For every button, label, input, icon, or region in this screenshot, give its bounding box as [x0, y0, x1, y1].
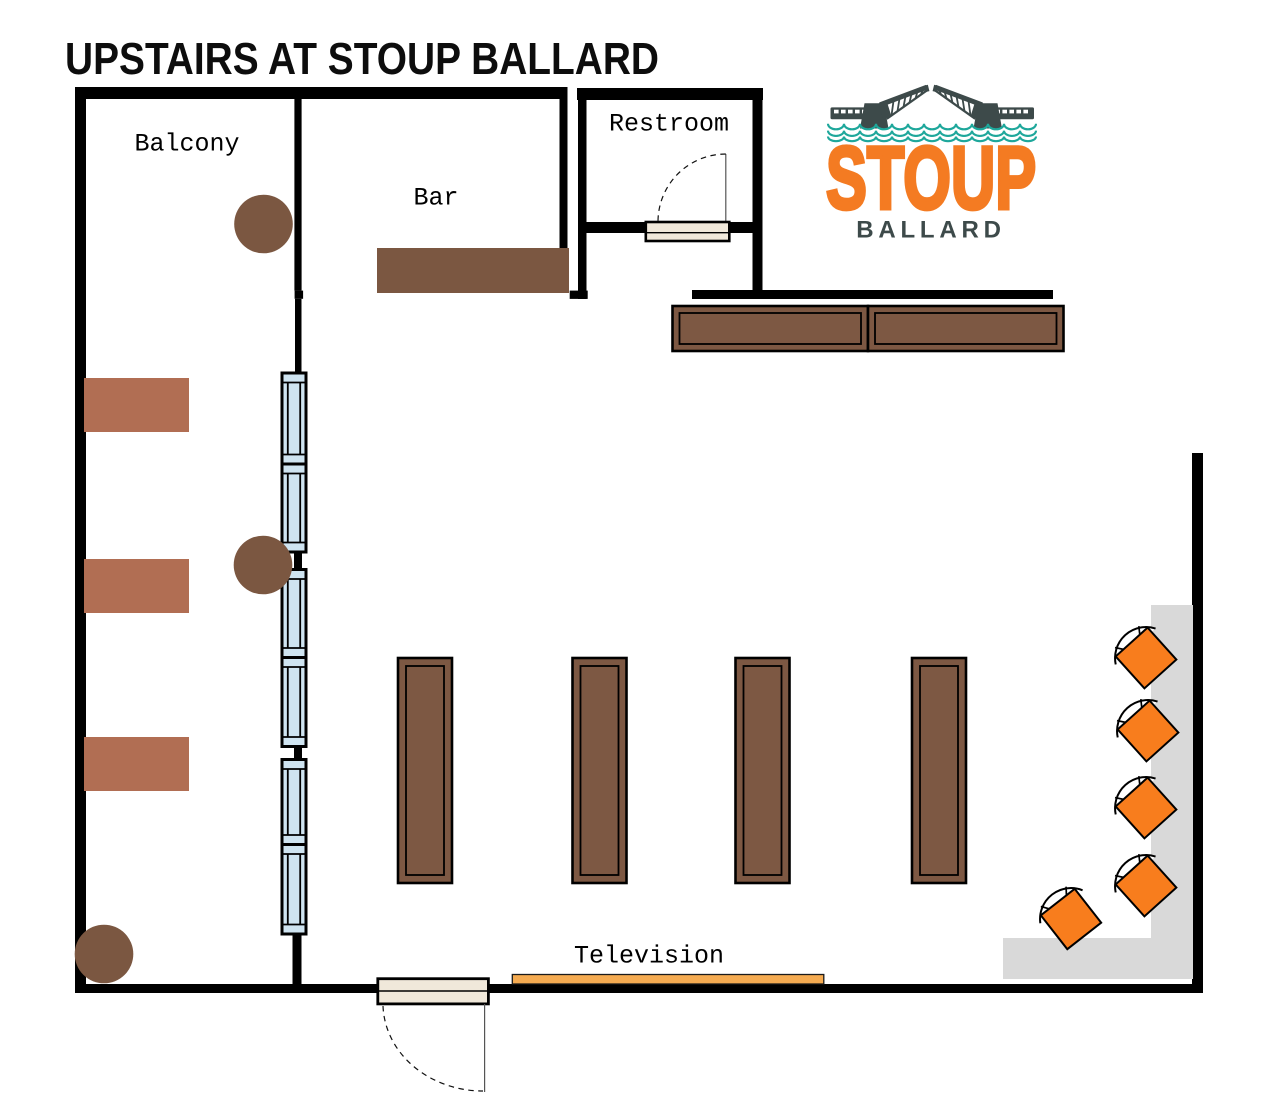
- svg-text:UPSTAIRS AT STOUP BALLARD: UPSTAIRS AT STOUP BALLARD: [65, 33, 659, 84]
- svg-text:BALLARD: BALLARD: [856, 217, 1006, 244]
- svg-text:Balcony: Balcony: [134, 130, 239, 159]
- svg-text:Bar: Bar: [413, 184, 458, 213]
- svg-text:Restroom: Restroom: [609, 110, 729, 139]
- svg-text:Television: Television: [574, 942, 724, 971]
- svg-text:STOUP: STOUP: [826, 128, 1036, 228]
